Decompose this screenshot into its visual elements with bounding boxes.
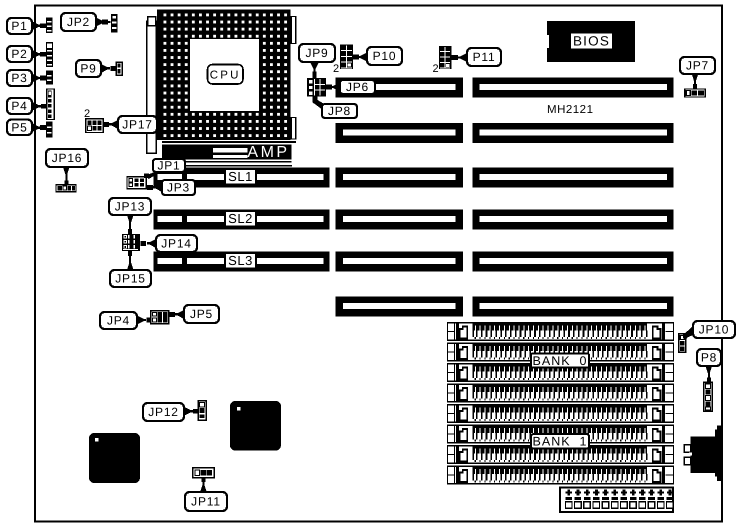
svg-text:P1: P1 xyxy=(11,19,27,33)
svg-text:SL1: SL1 xyxy=(228,169,253,184)
svg-text:JP12: JP12 xyxy=(148,405,179,419)
svg-text:MH2121: MH2121 xyxy=(547,104,593,116)
svg-text:JP5: JP5 xyxy=(190,307,213,321)
svg-text:JP1: JP1 xyxy=(157,159,180,173)
svg-text:P3: P3 xyxy=(11,71,27,85)
svg-text:2: 2 xyxy=(84,108,90,120)
svg-text:P5: P5 xyxy=(11,120,27,134)
svg-text:JP2: JP2 xyxy=(67,15,90,29)
svg-text:P11: P11 xyxy=(473,50,496,64)
svg-text:JP4: JP4 xyxy=(107,314,130,328)
svg-text:CPU: CPU xyxy=(210,70,241,82)
svg-text:JP9: JP9 xyxy=(305,46,328,60)
svg-text:JP8: JP8 xyxy=(328,104,351,118)
svg-text:SL3: SL3 xyxy=(228,253,253,268)
svg-text:SL2: SL2 xyxy=(228,211,253,226)
svg-text:BANK 0: BANK 0 xyxy=(533,354,588,368)
svg-text:2: 2 xyxy=(432,63,438,75)
svg-text:JP17: JP17 xyxy=(122,118,153,132)
svg-text:JP3: JP3 xyxy=(167,181,190,195)
svg-text:JP10: JP10 xyxy=(699,323,730,337)
svg-text:P8: P8 xyxy=(701,351,717,365)
svg-text:2: 2 xyxy=(333,63,339,75)
svg-text:BIOS: BIOS xyxy=(573,34,610,49)
svg-text:P4: P4 xyxy=(11,99,27,113)
svg-text:JP14: JP14 xyxy=(161,237,192,251)
svg-text:JP15: JP15 xyxy=(115,272,146,286)
svg-text:P9: P9 xyxy=(80,62,96,76)
svg-text:P2: P2 xyxy=(11,47,27,61)
svg-text:JP13: JP13 xyxy=(115,200,146,214)
svg-text:P10: P10 xyxy=(373,49,397,63)
svg-text:JP6: JP6 xyxy=(346,80,369,94)
svg-text:JP16: JP16 xyxy=(52,151,83,165)
svg-text:JP7: JP7 xyxy=(686,59,709,73)
svg-text:AMP: AMP xyxy=(247,144,289,161)
svg-text:JP11: JP11 xyxy=(191,495,221,509)
svg-text:BANK 1: BANK 1 xyxy=(533,435,588,449)
